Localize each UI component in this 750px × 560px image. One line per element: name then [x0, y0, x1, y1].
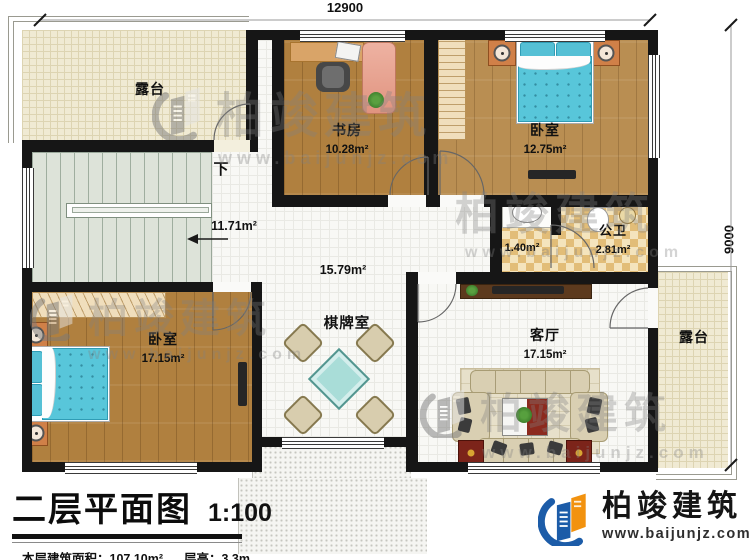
- tv: [528, 170, 576, 179]
- window-bedroom-top: [505, 30, 605, 42]
- title-block: 二层平面图 1:100 本层建筑面积：107.10m² 层高：3.3m: [12, 482, 272, 560]
- wall-chess-living: [406, 284, 418, 472]
- window-stairs: [22, 168, 34, 268]
- wardrobe: [438, 38, 466, 140]
- door-gap-terrace-right: [648, 288, 658, 328]
- room-label-living: 客厅 17.15m²: [524, 327, 567, 364]
- wall-bath-partition: [551, 195, 561, 235]
- dimension-height-label: 9000: [722, 217, 737, 263]
- wall-terrace-right: [246, 30, 258, 152]
- stairs-direction-label: 下: [213, 161, 228, 178]
- title-underline: [12, 534, 242, 539]
- door-gap-terrace-top: [214, 140, 250, 152]
- vanity-area-label: 1.40m²: [505, 238, 540, 256]
- room-label-terrace-top: 露台: [135, 81, 165, 99]
- plant: [368, 92, 384, 108]
- nightstand: [592, 40, 620, 66]
- door-gap-living: [418, 272, 456, 284]
- clothes-rack: [32, 292, 166, 318]
- wall-study-bedroom: [424, 30, 438, 207]
- wall-bedroom-bottom-right: [252, 282, 262, 472]
- sofa-back: [470, 370, 590, 394]
- room-label-bedroom-bottom: 卧室 17.15m²: [142, 331, 185, 368]
- company-website: www.baijunjz.com: [602, 526, 750, 542]
- door-gap-bedroom-bottom: [213, 282, 251, 292]
- company-name: 柏竣建筑: [602, 492, 750, 522]
- lamp-icon: [598, 45, 615, 62]
- window-chess: [282, 437, 384, 449]
- dimension-width-label: 12900: [327, 1, 363, 16]
- floor-plan-page: 12900 9000: [0, 0, 750, 560]
- tv: [238, 362, 247, 406]
- nightstand: [488, 40, 516, 66]
- wall-study-left: [272, 30, 284, 207]
- lamp-icon: [494, 45, 511, 62]
- room-label-bathroom: 公卫 2.81m²: [596, 222, 631, 259]
- terrace-top-railing-inner: [13, 21, 249, 143]
- company-logo-icon: [538, 488, 592, 546]
- floor-area-label: 本层建筑面积：107.10m²: [22, 552, 163, 560]
- page-title: 二层平面图: [12, 482, 192, 531]
- floor-height-label: 层高：3.3m: [184, 552, 250, 560]
- room-label-chess: 棋牌室: [324, 315, 371, 333]
- door-gap-bedroom-top: [440, 195, 484, 207]
- desk-chair-seat: [322, 66, 344, 88]
- room-label-terrace-right: 露台: [679, 329, 709, 347]
- staircase: [32, 152, 212, 284]
- brand-logo: 柏竣建筑 www.baijunjz.com: [538, 488, 750, 546]
- room-label-bedroom-top: 卧室 12.75m²: [524, 122, 567, 159]
- terrace-right-railing-inner: [656, 271, 732, 475]
- sofa-pillow: [519, 442, 535, 456]
- hallway-area-label: 15.79m²: [320, 261, 367, 279]
- room-label-study: 书房 10.28m²: [326, 122, 369, 159]
- title-underline-thin: [12, 542, 242, 543]
- plant: [466, 285, 478, 296]
- window-living: [468, 462, 600, 474]
- study-floor: [284, 40, 424, 195]
- tv: [492, 286, 564, 294]
- scale-label: 1:100: [208, 499, 272, 528]
- door-gap-study: [388, 195, 426, 207]
- window-bedroom-right: [648, 55, 660, 158]
- wall-bath-left: [490, 195, 502, 284]
- stair-handrail-inner: [72, 207, 209, 213]
- plant: [516, 407, 532, 423]
- stairs-area-label: 11.71m²: [211, 217, 257, 235]
- window-bedroom-bottom: [65, 462, 197, 474]
- window-study: [300, 30, 405, 42]
